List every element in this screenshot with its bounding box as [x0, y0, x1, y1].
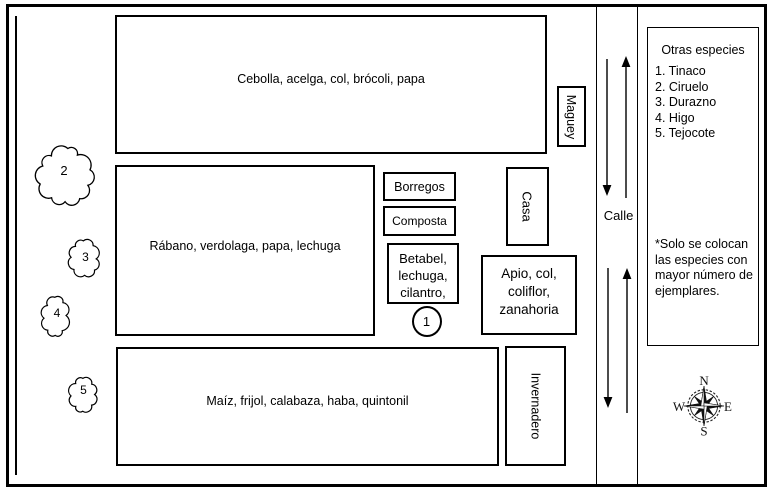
svg-text:E: E	[724, 399, 732, 414]
svg-text:5: 5	[80, 383, 87, 397]
svg-text:W: W	[673, 399, 686, 414]
svg-text:N: N	[699, 373, 709, 388]
svg-text:S: S	[700, 424, 707, 439]
